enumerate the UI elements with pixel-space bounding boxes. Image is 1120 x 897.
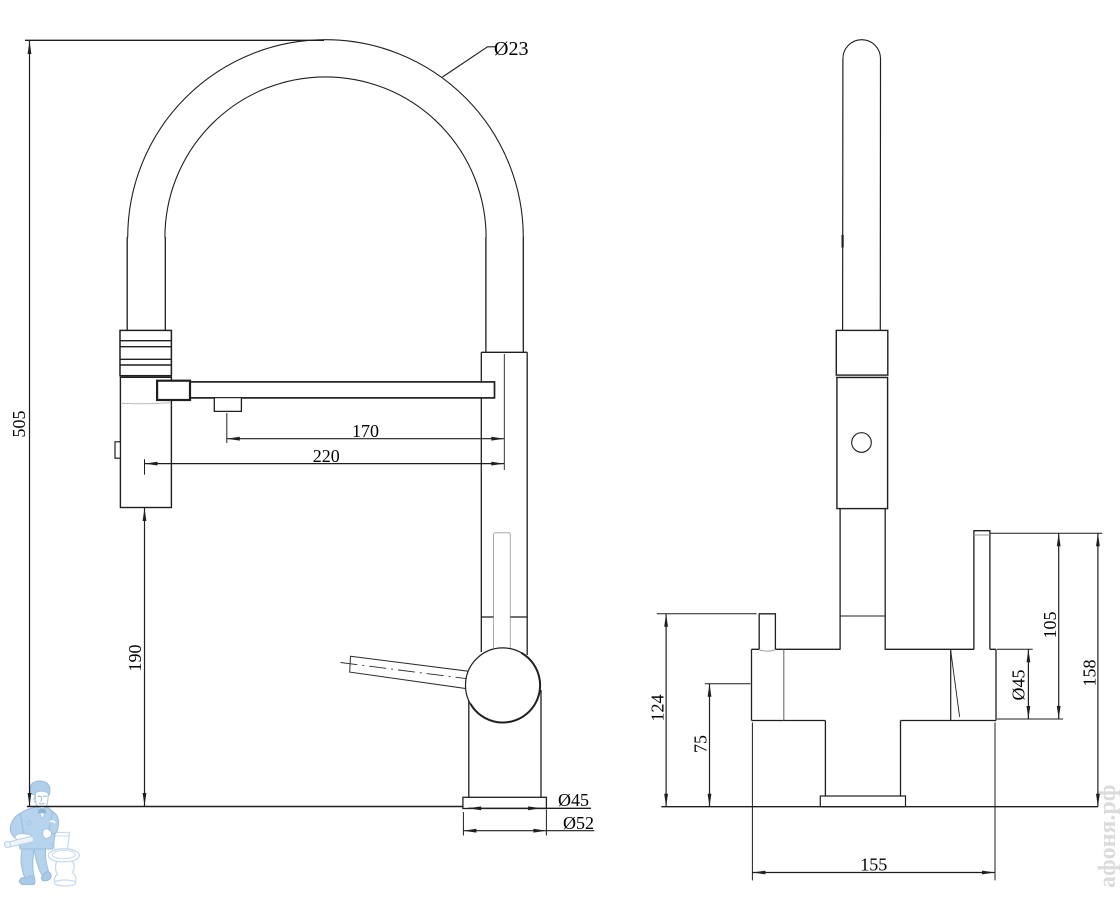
svg-text:105: 105	[1040, 612, 1060, 639]
svg-text:Ø52: Ø52	[563, 813, 594, 833]
svg-text:75: 75	[691, 735, 711, 753]
svg-text:190: 190	[125, 645, 145, 672]
svg-text:Ø45: Ø45	[1009, 670, 1029, 701]
svg-text:124: 124	[648, 695, 668, 722]
svg-text:Ø23: Ø23	[494, 38, 528, 60]
svg-text:155: 155	[860, 855, 887, 875]
svg-text:220: 220	[313, 446, 340, 466]
svg-text:Ø45: Ø45	[558, 790, 589, 810]
svg-text:505: 505	[9, 411, 29, 438]
svg-text:170: 170	[352, 421, 379, 441]
svg-text:158: 158	[1080, 660, 1100, 687]
